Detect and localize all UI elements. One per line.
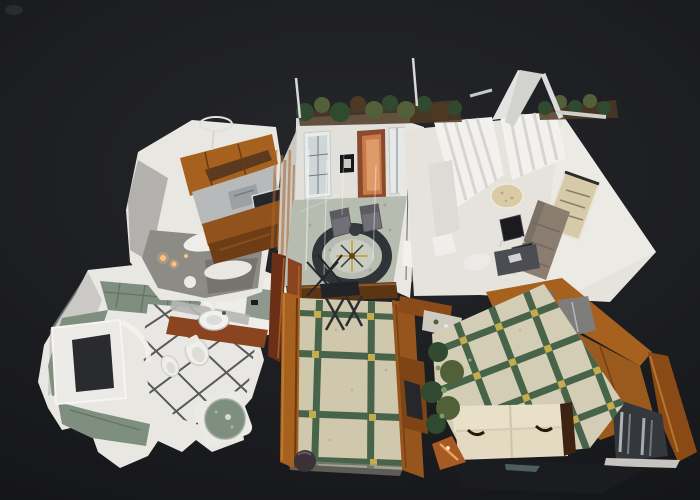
hall-picture-frame [340, 154, 354, 173]
dollhouse-scene [0, 0, 700, 500]
room-living-room[interactable] [404, 112, 656, 302]
hall-door-orange-open [357, 129, 386, 200]
balcony-plants [296, 94, 618, 126]
scan-artifact-blob [5, 5, 23, 15]
living-room-round-table [491, 184, 523, 208]
bathroom-shower-tray [52, 320, 126, 404]
hallway-pot [294, 450, 316, 472]
room-kitchen[interactable] [126, 117, 288, 302]
kitchen-scan-fragment [184, 276, 196, 288]
dollhouse-3d-viewer[interactable] [0, 0, 700, 500]
bedroom-cream-sofa [452, 402, 576, 460]
hallway-left-jamb [280, 292, 300, 470]
